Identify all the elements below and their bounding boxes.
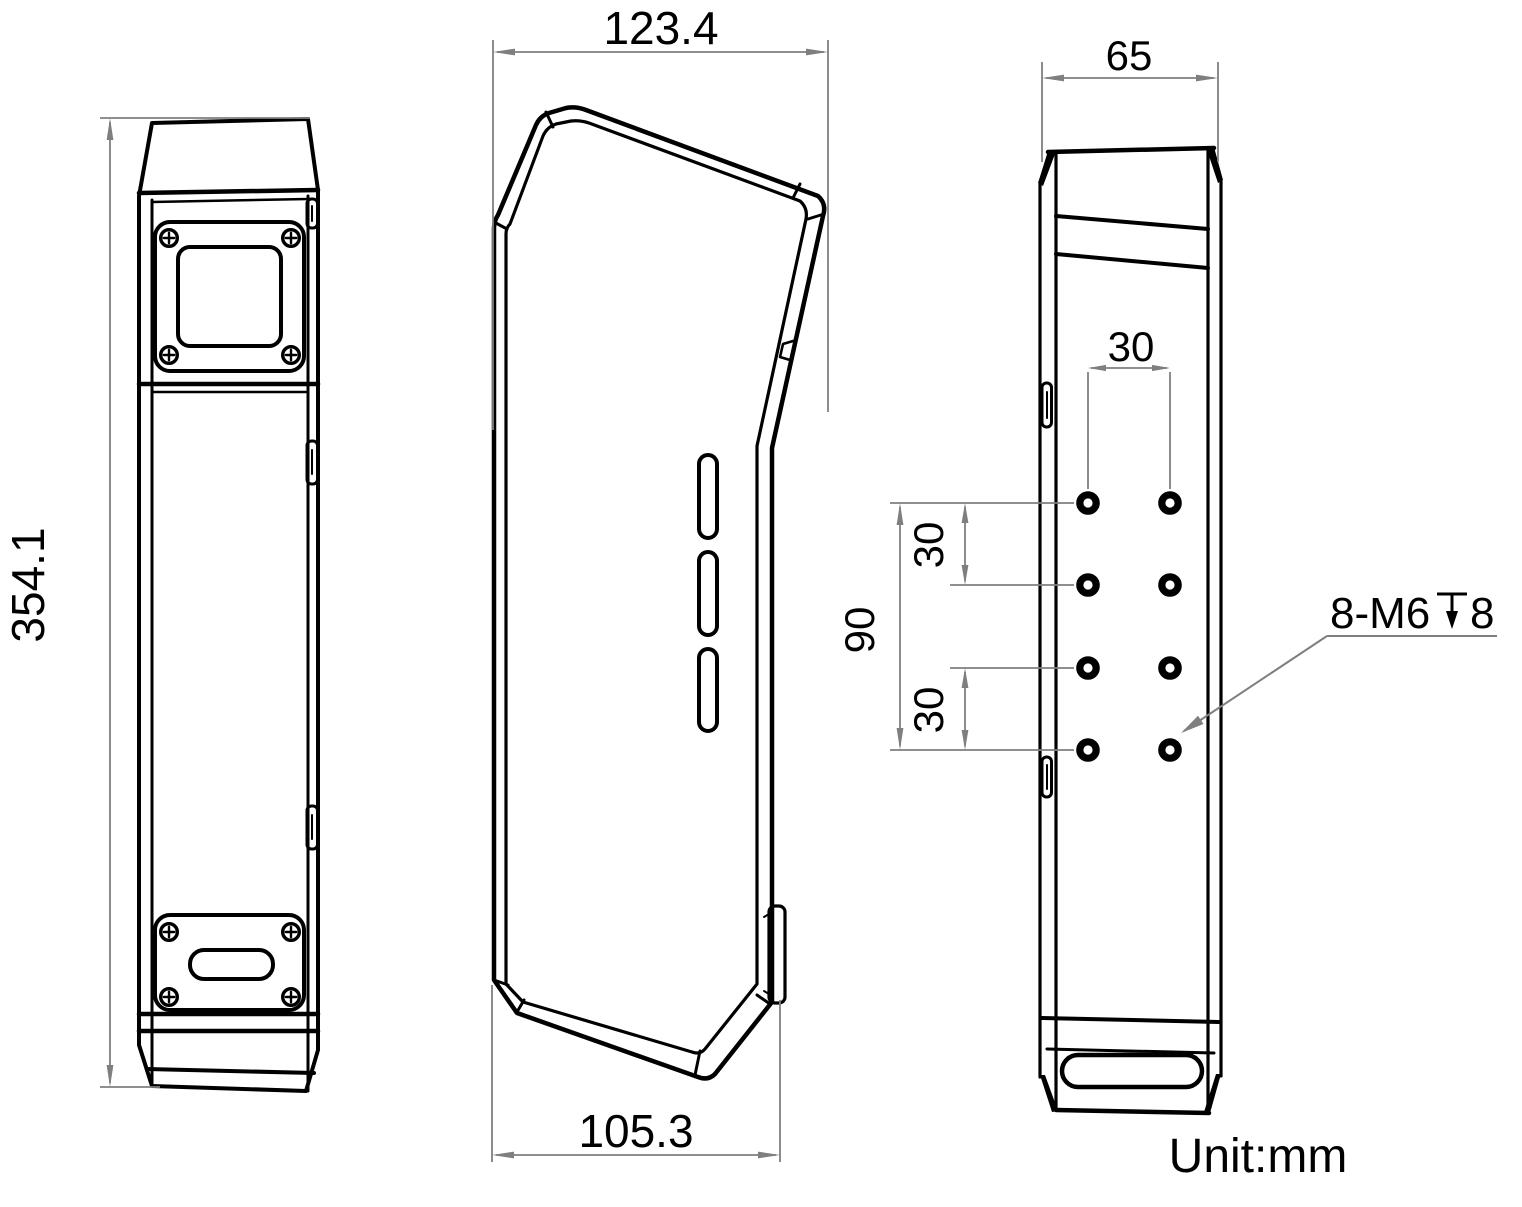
back-bottom-seam-2 bbox=[1047, 1049, 1214, 1053]
front-view-outline bbox=[139, 119, 318, 1091]
dim-label-front-height: 354.1 bbox=[2, 527, 54, 642]
front-top-seam bbox=[139, 190, 318, 193]
vent-slot bbox=[699, 552, 717, 635]
screw bbox=[161, 230, 178, 247]
thread-callout-prefix: 8-M6 bbox=[1330, 589, 1430, 638]
back-view bbox=[1038, 147, 1223, 1113]
screw bbox=[283, 989, 300, 1006]
dim-label-back-width: 65 bbox=[1106, 32, 1153, 79]
mount-hole bbox=[1080, 660, 1096, 676]
screw bbox=[283, 924, 300, 941]
dim-hole-upper: 30 bbox=[905, 503, 1074, 585]
dim-label-hole-span: 90 bbox=[836, 607, 883, 654]
dim-back-width: 65 bbox=[1042, 32, 1218, 162]
connector-slot bbox=[190, 950, 273, 979]
mount-hole bbox=[1162, 495, 1178, 511]
screw bbox=[283, 230, 300, 247]
dim-hole-span: 90 bbox=[836, 503, 1074, 750]
mount-hole bbox=[1162, 577, 1178, 593]
mount-hole bbox=[1162, 660, 1178, 676]
screw bbox=[161, 924, 178, 941]
corner-chamfer bbox=[1038, 151, 1055, 186]
back-bottom-edge bbox=[1056, 1110, 1209, 1113]
dim-hole-columns: 30 bbox=[1088, 323, 1170, 489]
vent-slot bbox=[699, 455, 717, 538]
mount-hole bbox=[1162, 742, 1178, 758]
dim-label-side-top-width: 123.4 bbox=[603, 2, 718, 54]
mount-hole bbox=[1080, 495, 1096, 511]
thread-callout: 8-M6 8 bbox=[1181, 589, 1497, 733]
thread-callout-depth: 8 bbox=[1470, 589, 1494, 638]
back-bottom-seam-1 bbox=[1042, 1018, 1219, 1022]
unit-label: Unit:mm bbox=[1169, 1130, 1348, 1183]
screw bbox=[161, 989, 178, 1006]
depth-symbol-icon bbox=[1437, 594, 1467, 629]
back-bottom-slot bbox=[1062, 1055, 1202, 1087]
front-top-seam-2 bbox=[152, 199, 308, 202]
technical-drawing: 354.1 123.4 105.3 65 30 bbox=[0, 0, 1522, 1207]
screw bbox=[161, 347, 178, 364]
dim-hole-lower: 30 bbox=[905, 668, 1074, 750]
dim-label-hole-columns: 30 bbox=[1108, 323, 1155, 370]
back-top-seam-1 bbox=[1056, 216, 1208, 229]
back-top-edge bbox=[1048, 148, 1214, 152]
mount-hole bbox=[1080, 577, 1096, 593]
mount-hole bbox=[1080, 742, 1096, 758]
leader-arrow bbox=[1181, 716, 1204, 733]
dim-label-hole-upper: 30 bbox=[905, 522, 952, 569]
screw bbox=[283, 347, 300, 364]
front-bottom-seam-3 bbox=[147, 1069, 314, 1073]
back-top-seam-2 bbox=[1056, 254, 1208, 268]
drawing-canvas: 354.1 123.4 105.3 65 30 bbox=[0, 0, 1522, 1207]
side-view bbox=[494, 107, 824, 1078]
front-view bbox=[139, 119, 318, 1091]
dim-side-top-width: 123.4 bbox=[493, 2, 828, 430]
vent-slot bbox=[699, 649, 717, 731]
dim-label-side-bottom-width: 105.3 bbox=[578, 1105, 693, 1157]
dim-label-hole-lower: 30 bbox=[905, 687, 952, 734]
side-view-outline bbox=[494, 107, 824, 1078]
chamfer-tick bbox=[517, 1000, 524, 1012]
side-view-inner-edge bbox=[506, 121, 806, 1053]
camera-window bbox=[178, 247, 281, 346]
